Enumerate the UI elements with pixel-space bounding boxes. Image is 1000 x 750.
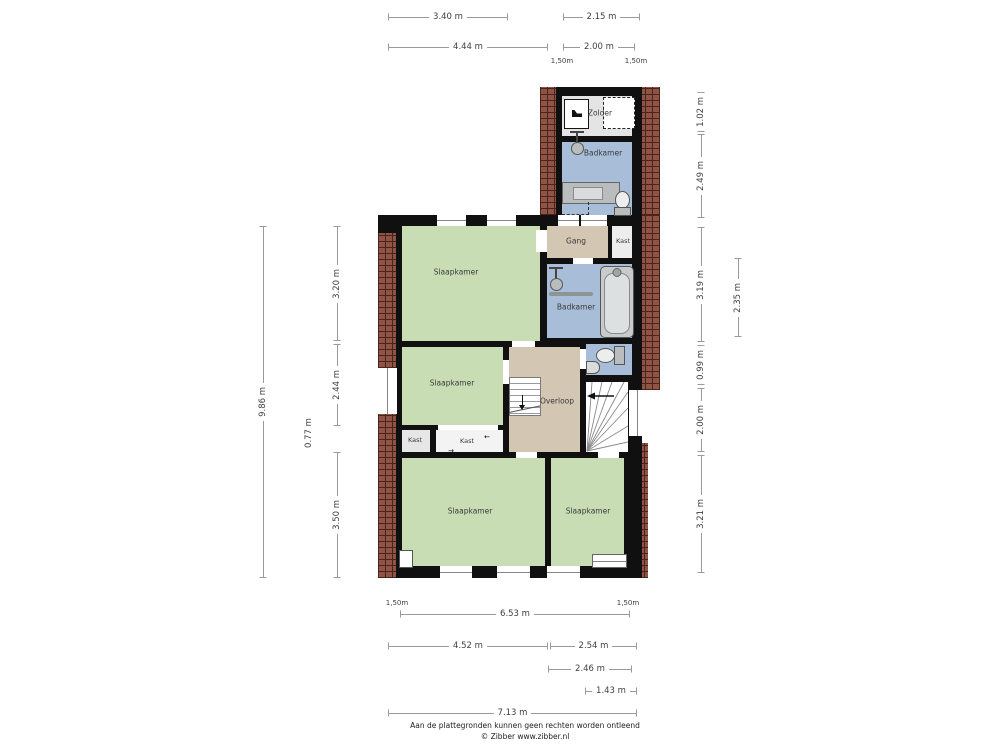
dim-label: 2.46 m (571, 665, 609, 674)
dim-label: 2.49 m (697, 157, 706, 195)
dim-top-3-40: 3.40 m (388, 10, 508, 24)
kast-arrow-left: ← (484, 433, 490, 441)
dim-bottom-2-46: 2.46 m (548, 662, 632, 676)
dim-label: 6.53 m (496, 610, 534, 619)
dim-label: 7.13 m (494, 709, 532, 718)
window-right-stairs (629, 390, 645, 436)
dim-top-1-50-right: 1,50m (625, 57, 647, 65)
dim-top-4-44: 4.44 m (388, 40, 548, 54)
room-label-slaapkamer-bottomright: Slaapkamer (566, 507, 611, 516)
dim-right-2-00: 2.00 m (694, 388, 708, 452)
dim-right-3-21: 3.21 m (694, 455, 708, 573)
window-bottom-3 (547, 566, 580, 578)
room-slaapkamer-topleft (402, 226, 540, 341)
dim-top-2-15: 2.15 m (563, 10, 640, 24)
door-gang-slaapkamer (536, 230, 547, 252)
dim-left-3-20: 3.20 m (330, 226, 344, 341)
dim-label: 3.21 m (697, 495, 706, 533)
window-bottom-2 (497, 566, 530, 578)
copyright-line: © Zibber www.zibber.nl (310, 732, 740, 743)
dim-right-1-02: 1.02 m (694, 92, 708, 132)
dim-label: 2.00 m (580, 43, 618, 52)
dim-left-0-77: 0.77 m (304, 418, 314, 448)
dim-left-2-44: 2.44 m (330, 344, 344, 426)
dim-label: 0.99 m (697, 346, 706, 384)
floorplan-canvas: ← → Zolder Badkamer Gang Kast Badkamer S… (0, 0, 1000, 750)
bathtub (600, 266, 634, 338)
brick-wall-left-upper (378, 230, 397, 368)
bathtub-inner (604, 273, 630, 334)
dim-label: 3.40 m (429, 13, 467, 22)
dim-right-0-99: 0.99 m (694, 345, 708, 385)
vanity-counter (562, 182, 620, 204)
window-top-1 (437, 215, 466, 226)
shower-screen-dashed (562, 202, 589, 215)
room-label-slaapkamer-topleft: Slaapkamer (434, 268, 479, 277)
toilet-sink (586, 361, 600, 374)
dim-label: 3.19 m (697, 266, 706, 304)
wall-corner-topleft (378, 215, 400, 233)
dim-label: 4.44 m (449, 43, 487, 52)
stairs-winder (586, 382, 628, 452)
vanity-sink-basin (573, 187, 603, 200)
shower-head-main-icon (550, 278, 563, 291)
dim-label: 2.00 m (697, 401, 706, 439)
room-label-slaapkamer-midleft: Slaapkamer (430, 379, 475, 388)
brick-wall-left-lower (378, 414, 397, 578)
dim-label: 2.35 m (734, 279, 743, 317)
room-label-kast-mid: Kast (460, 437, 474, 445)
window-top-2 (487, 215, 516, 226)
stairs-down-arrow (522, 395, 523, 408)
room-label-overloop: Overloop (540, 397, 574, 406)
dim-right-2-35: 2.35 m (731, 258, 745, 337)
door-gang-badkamer (573, 258, 593, 264)
brick-wall-wing-left (540, 87, 557, 215)
dim-right-3-19: 3.19 m (694, 227, 708, 342)
room-label-kast-left: Kast (408, 436, 422, 444)
towel-radiator (549, 292, 593, 296)
room-label-gang: Gang (566, 237, 586, 246)
shower-head-top-icon (571, 142, 584, 155)
door-slaapkamer-topleft (512, 341, 535, 347)
room-label-zolder: Zolder (588, 109, 612, 118)
dim-label: 2.15 m (583, 13, 621, 22)
door-slaapkamer-bottomleft (516, 452, 537, 458)
window-bottom-1 (440, 566, 472, 578)
room-label-kast-gang: Kast (616, 237, 630, 245)
door-slaapkamer-bottomright (598, 452, 619, 458)
dim-bottom-1-43: 1.43 m (585, 684, 637, 698)
dim-label: 9.86 m (259, 383, 268, 421)
room-label-badkamer: Badkamer (557, 303, 595, 312)
bathtub-tap (613, 268, 622, 277)
room-label-slaapkamer-bottomleft: Slaapkamer (448, 507, 493, 516)
door-wing-gang (581, 215, 607, 226)
window-left (378, 368, 397, 414)
toilet-bowl (596, 348, 615, 363)
dim-bottom-1-50-left: 1,50m (386, 599, 408, 607)
dim-bottom-6-53: 6.53 m (400, 607, 630, 621)
dim-label: 1.02 m (697, 93, 706, 131)
dim-label: 4.52 m (449, 642, 487, 651)
room-label-badkamer-top: Badkamer (584, 149, 622, 158)
kast-arrow-right: → (448, 447, 454, 455)
dim-bottom-7-13: 7.13 m (388, 706, 637, 720)
dim-label: 3.20 m (333, 265, 342, 303)
opening-wing-1 (558, 215, 579, 226)
toilet-tank (614, 346, 625, 365)
dim-label: 3.50 m (333, 496, 342, 534)
dim-label: 2.44 m (333, 366, 342, 404)
dim-left-3-50: 3.50 m (330, 452, 344, 578)
dim-label: 1.43 m (592, 687, 630, 696)
window-bottomright-inset (592, 554, 627, 568)
door-kast-sliding (438, 425, 498, 430)
dim-left-9-86: 9.86 m (256, 226, 270, 578)
chimney-recess (399, 550, 413, 568)
dim-bottom-2-54: 2.54 m (550, 639, 637, 653)
disclaimer-line: Aan de plattegronden kunnen geen rechten… (310, 721, 740, 732)
dim-top-1-50-left: 1,50m (551, 57, 573, 65)
washing-machine-icon (571, 108, 583, 120)
dim-bottom-1-50-right: 1,50m (617, 599, 639, 607)
dim-bottom-4-52: 4.52 m (388, 639, 548, 653)
disclaimer-footer: Aan de plattegronden kunnen geen rechten… (310, 721, 740, 743)
washing-machine (564, 99, 589, 129)
dim-top-2-00: 2.00 m (563, 40, 635, 54)
dim-label: 2.54 m (575, 642, 613, 651)
dim-right-2-49: 2.49 m (694, 134, 708, 218)
toilet-tank-top (614, 207, 631, 216)
